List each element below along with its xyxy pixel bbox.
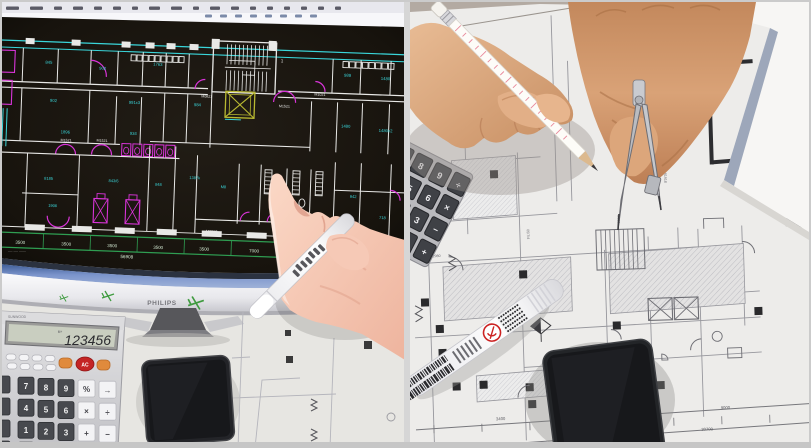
svg-text:÷: ÷ [105, 408, 110, 417]
svg-text:AC: AC [81, 363, 89, 369]
svg-text:9: 9 [64, 385, 69, 394]
svg-text:3400: 3400 [496, 416, 506, 421]
svg-text:1906: 1906 [48, 203, 58, 208]
svg-text:M1021: M1021 [314, 92, 325, 96]
svg-text:942: 942 [350, 194, 358, 199]
svg-text:1480: 1480 [381, 76, 391, 81]
svg-text:8185: 8185 [44, 176, 54, 181]
svg-text:7000: 7000 [249, 248, 260, 253]
svg-text:718: 718 [379, 215, 387, 220]
svg-text:902: 902 [50, 98, 58, 103]
svg-text:2: 2 [44, 427, 49, 436]
svg-text:M1521: M1521 [96, 139, 107, 143]
svg-text:M+: M+ [58, 330, 63, 334]
svg-text:1480x2: 1480x2 [379, 128, 394, 134]
svg-text:3500: 3500 [15, 240, 26, 245]
svg-text:843/6: 843/6 [108, 178, 119, 183]
svg-text:3: 3 [64, 429, 69, 438]
svg-text:05/7/4: 05/7/4 [526, 229, 530, 239]
svg-text:6: 6 [64, 407, 69, 416]
svg-text:3500: 3500 [199, 246, 210, 251]
svg-text:3500: 3500 [153, 245, 164, 250]
svg-text:56908: 56908 [120, 254, 133, 259]
svg-text:902: 902 [99, 66, 107, 71]
svg-text:845: 845 [45, 60, 53, 65]
svg-text:123456: 123456 [64, 332, 111, 348]
svg-text:__ __ ___: __ __ ___ [7, 247, 27, 252]
svg-text:3500: 3500 [107, 243, 118, 248]
svg-text:8: 8 [44, 383, 49, 392]
svg-text:M1521: M1521 [60, 138, 71, 142]
svg-text:991x3: 991x3 [129, 100, 141, 105]
svg-text:1: 1 [24, 426, 29, 435]
svg-text:4: 4 [24, 404, 29, 413]
svg-text:+: + [84, 429, 89, 438]
svg-text:M0821: M0821 [201, 94, 212, 98]
svg-text:3500: 3500 [61, 241, 72, 246]
svg-text:M1521: M1521 [279, 104, 290, 108]
svg-text:30700: 30700 [701, 426, 713, 431]
svg-text:M8: M8 [221, 184, 228, 189]
svg-text:1763: 1763 [153, 62, 163, 67]
svg-text:%: % [83, 385, 90, 394]
svg-text:SUNWOOD: SUNWOOD [8, 315, 27, 319]
svg-text:988: 988 [344, 73, 352, 78]
svg-text:934: 934 [130, 131, 138, 136]
svg-text:5: 5 [44, 405, 49, 414]
svg-text:PHILIPS: PHILIPS [147, 300, 177, 307]
svg-text:−: − [105, 430, 110, 439]
svg-text:7: 7 [24, 382, 29, 391]
svg-text:1480: 1480 [341, 123, 351, 128]
svg-text:1896: 1896 [61, 129, 71, 134]
svg-text:→: → [104, 386, 112, 395]
svg-text:848: 848 [155, 182, 163, 187]
svg-text:9000: 9000 [721, 405, 731, 410]
svg-text:984: 984 [194, 102, 202, 107]
svg-text:×: × [84, 407, 89, 416]
svg-text:1387k: 1387k [189, 175, 200, 180]
